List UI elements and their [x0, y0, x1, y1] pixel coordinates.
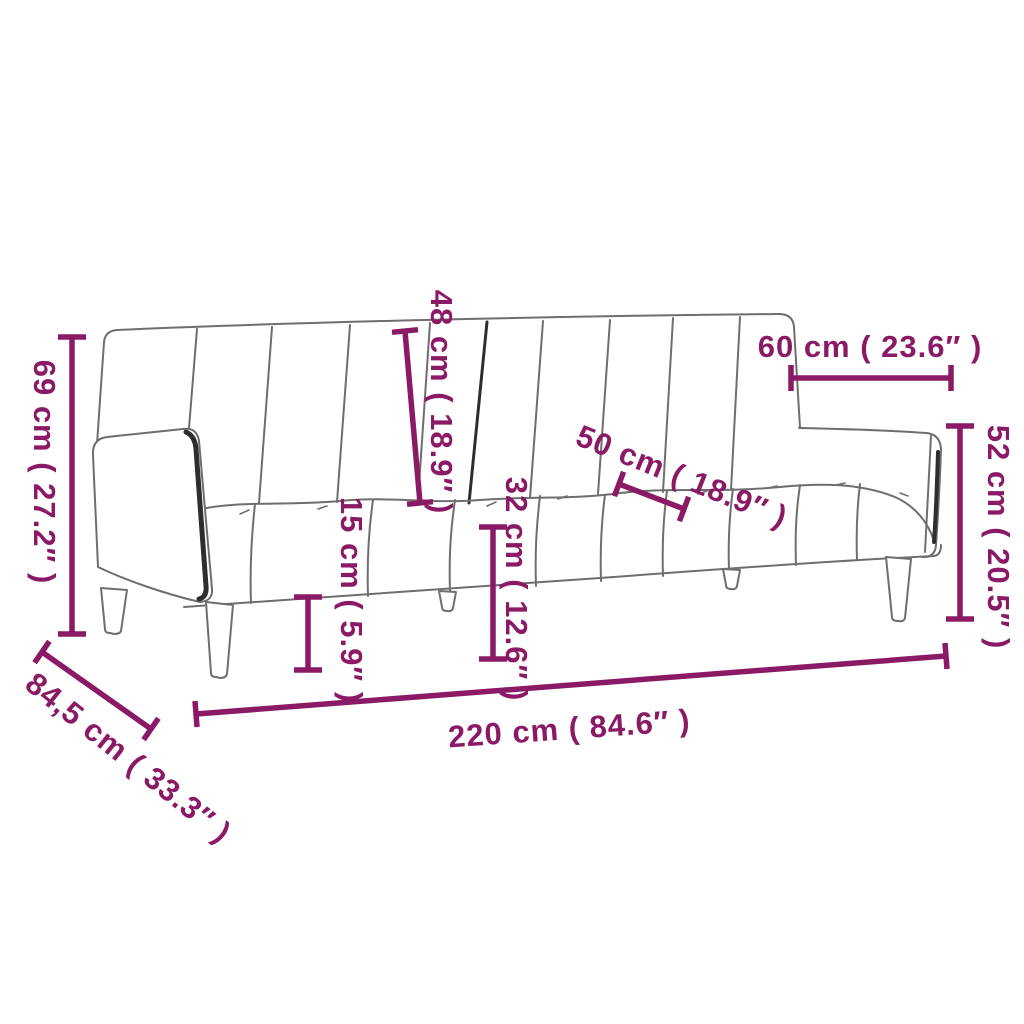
dim-label-leg-height: 15 cm ( 5.9″ ) [334, 497, 369, 703]
dim-line-armrest-height [946, 426, 974, 619]
dim-line-leg-height [294, 597, 322, 670]
sofa-seat [184, 483, 941, 607]
dim-label-overall-height: 69 cm ( 27.2″ ) [27, 360, 62, 585]
dim-label-backrest-height: 48 cm ( 18.9″ ) [424, 290, 459, 515]
dimension-diagram: 69 cm ( 27.2″ ) 84,5 cm ( 33.3″ ) 48 cm … [0, 0, 1024, 1024]
sofa-left-armrest [93, 429, 212, 602]
dim-line-armrest-length [791, 365, 951, 391]
dim-label-seat-height: 32 cm ( 12.6″ ) [499, 477, 534, 702]
diagram-canvas: 69 cm ( 27.2″ ) 84,5 cm ( 33.3″ ) 48 cm … [0, 0, 1024, 1024]
dim-label-armrest-length: 60 cm ( 23.6″ ) [758, 329, 983, 364]
backrest-center-seam [469, 322, 487, 503]
dim-label-armrest-height: 52 cm ( 20.5″ ) [981, 425, 1016, 650]
sofa-right-armrest-folded [799, 428, 941, 557]
dim-label-overall-width: 220 cm ( 84.6″ ) [447, 703, 692, 755]
dim-label-overall-depth: 84,5 cm ( 33.3″ ) [19, 666, 238, 851]
